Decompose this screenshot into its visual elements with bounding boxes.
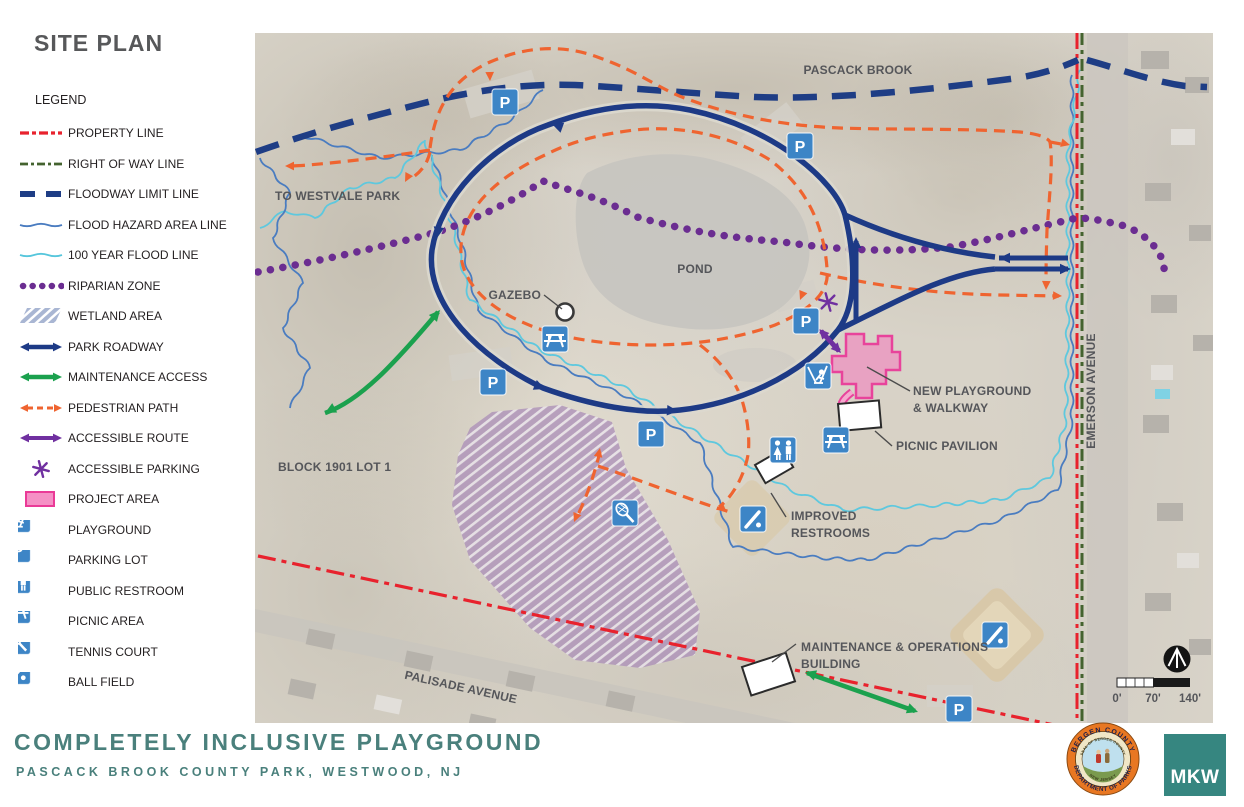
bergen-county-parks-seal: BERGEN COUNTY DEPARTMENT OF PARKS SEAL O… <box>1066 722 1140 796</box>
accessible-parking-symbol <box>16 456 66 482</box>
legend-item-wetland: WETLAND AREA <box>16 301 254 332</box>
picnic-pavilion-label: PICNIC PAVILION <box>896 439 998 453</box>
map-area: P <box>255 33 1213 723</box>
right-of-way-symbol <box>16 151 66 177</box>
parking-symbol <box>16 547 66 573</box>
legend-item-label: RIPARIAN ZONE <box>66 279 160 293</box>
legend-item-parking: PARKING LOT <box>16 545 254 576</box>
playground-symbol <box>16 517 66 543</box>
project-area <box>832 334 900 408</box>
legend-item-right-of-way: RIGHT OF WAY LINE <box>16 149 254 180</box>
legend-item-label: ACCESSIBLE ROUTE <box>66 431 189 445</box>
legend-item-label: PUBLIC RESTROOM <box>66 584 184 598</box>
gazebo-label: GAZEBO <box>488 288 541 302</box>
swimming-pool <box>1155 389 1170 399</box>
roadway-symbol <box>16 334 66 360</box>
flood-100-symbol <box>16 242 66 268</box>
picnic-symbol <box>16 608 66 634</box>
picnic-pavilion-building <box>838 400 881 430</box>
legend-item-label: FLOODWAY LIMIT LINE <box>66 187 199 201</box>
scale-70: 70' <box>1145 693 1161 705</box>
floodway-symbol <box>16 181 66 207</box>
legend-item-label: PARK ROADWAY <box>66 340 164 354</box>
legend-item-label: PICNIC AREA <box>66 614 144 628</box>
pond-label: POND <box>677 262 713 276</box>
legend-item-label: 100 YEAR FLOOD LINE <box>66 248 199 262</box>
improved-restrooms-label2: RESTROOMS <box>791 526 870 540</box>
site-plan-sheet: SITE PLAN LEGEND PROPERTY LINERIGHT OF W… <box>0 0 1244 807</box>
project-area-symbol <box>16 486 66 512</box>
floodway-limit-line <box>256 60 1207 152</box>
legend-item-picnic: PICNIC AREA <box>16 606 254 637</box>
legend-item-label: PARKING LOT <box>66 553 148 567</box>
ballfield-symbol <box>16 669 66 695</box>
legend-item-flood-hazard: FLOOD HAZARD AREA LINE <box>16 210 254 241</box>
legend-item-property-line: PROPERTY LINE <box>16 118 254 149</box>
block-lot-label: BLOCK 1901 LOT 1 <box>278 460 391 474</box>
legend-item-restroom: PUBLIC RESTROOM <box>16 576 254 607</box>
legend-item-pedestrian: PEDESTRIAN PATH <box>16 393 254 424</box>
flood-hazard-symbol <box>16 212 66 238</box>
legend-item-label: MAINTENANCE ACCESS <box>66 370 207 384</box>
pedestrian-symbol <box>16 395 66 421</box>
legend-item-ballfield: BALL FIELD <box>16 667 254 698</box>
project-title: COMPLETELY INCLUSIVE PLAYGROUND <box>14 729 543 756</box>
restroom-symbol <box>16 578 66 604</box>
scale-140: 140' <box>1179 693 1201 705</box>
legend-item-roadway: PARK ROADWAY <box>16 332 254 363</box>
legend-item-label: PROJECT AREA <box>66 492 159 506</box>
accessible-route-symbol <box>16 425 66 451</box>
new-playground-label: NEW PLAYGROUND <box>913 384 1031 398</box>
legend-item-label: TENNIS COURT <box>66 645 158 659</box>
legend-item-playground: PLAYGROUND <box>16 515 254 546</box>
legend-item-tennis: TENNIS COURT <box>16 637 254 668</box>
legend-item-label: PROPERTY LINE <box>66 126 164 140</box>
project-subtitle: PASCACK BROOK COUNTY PARK, WESTWOOD, NJ <box>16 765 464 779</box>
improved-restrooms-label: IMPROVED <box>791 509 857 523</box>
mkw-logo-text: MKW <box>1171 767 1220 789</box>
maintenance-ops-label: MAINTENANCE & OPERATIONS <box>801 640 988 654</box>
pascack-brook-label: PASCACK BROOK <box>803 63 912 77</box>
riparian-symbol <box>16 273 66 299</box>
legend-item-floodway: FLOODWAY LIMIT LINE <box>16 179 254 210</box>
new-playground-label2: & WALKWAY <box>913 401 988 415</box>
legend-item-maintenance: MAINTENANCE ACCESS <box>16 362 254 393</box>
legend-item-label: WETLAND AREA <box>66 309 162 323</box>
legend-item-accessible-parking: ACCESSIBLE PARKING <box>16 454 254 485</box>
legend-item-accessible-route: ACCESSIBLE ROUTE <box>16 423 254 454</box>
legend-item-label: ACCESSIBLE PARKING <box>66 462 200 476</box>
scale-0: 0' <box>1112 693 1121 705</box>
maintenance-symbol <box>16 364 66 390</box>
wetland-symbol <box>16 303 66 329</box>
tennis-symbol <box>16 639 66 665</box>
legend-item-label: PEDESTRIAN PATH <box>66 401 178 415</box>
mkw-logo: MKW <box>1164 734 1226 796</box>
legend-list: PROPERTY LINERIGHT OF WAY LINEFLOODWAY L… <box>16 118 254 698</box>
legend-item-label: BALL FIELD <box>66 675 134 689</box>
legend-item-project-area: PROJECT AREA <box>16 484 254 515</box>
property-line-symbol <box>16 120 66 146</box>
legend-item-riparian: RIPARIAN ZONE <box>16 271 254 302</box>
legend-heading: LEGEND <box>35 93 86 107</box>
to-westvale-label: TO WESTVALE PARK <box>275 189 400 203</box>
map-overlay: P <box>255 33 1213 723</box>
legend-item-label: FLOOD HAZARD AREA LINE <box>66 218 227 232</box>
legend-item-flood-100: 100 YEAR FLOOD LINE <box>16 240 254 271</box>
page-title: SITE PLAN <box>34 30 163 57</box>
emerson-avenue-label: EMERSON AVENUE <box>1084 333 1098 448</box>
maintenance-ops-label2: BUILDING <box>801 657 861 671</box>
legend-item-label: PLAYGROUND <box>66 523 151 537</box>
legend-item-label: RIGHT OF WAY LINE <box>66 157 184 171</box>
legend-panel: SITE PLAN LEGEND PROPERTY LINERIGHT OF W… <box>0 0 255 730</box>
north-arrow <box>1164 646 1191 673</box>
